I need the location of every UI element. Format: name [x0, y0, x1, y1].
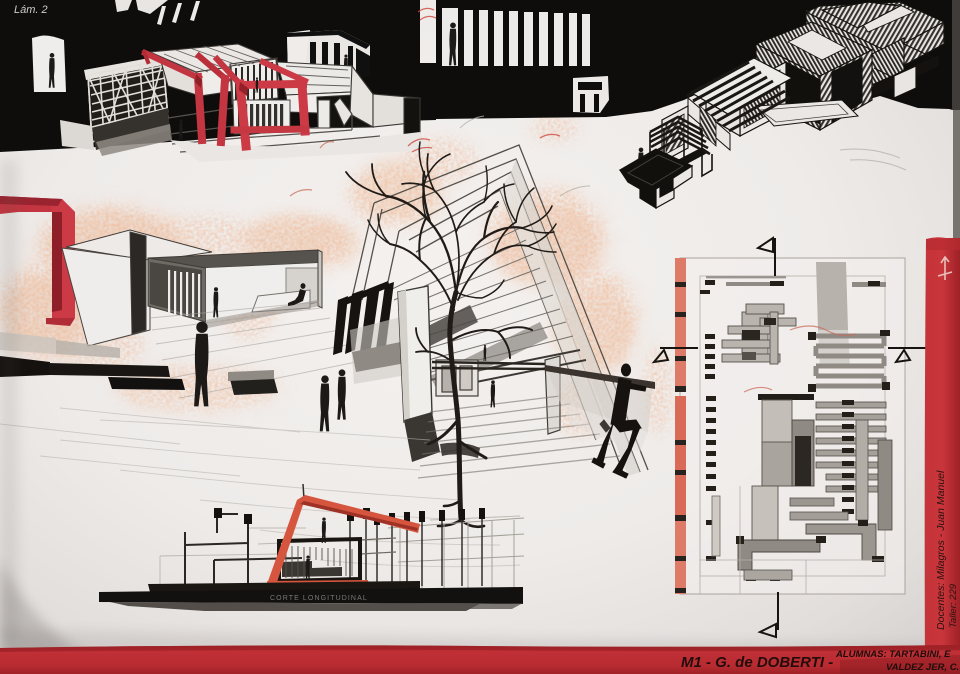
svg-text:CORTE LONGITUDINAL: CORTE LONGITUDINAL [270, 595, 368, 602]
svg-text:VALDEZ JER, C.: VALDEZ JER, C. [886, 662, 959, 673]
svg-text:M1 - G. de DOBERTI -: M1 - G. de DOBERTI - [681, 654, 833, 671]
svg-text:Docentes: Milagros - Juan Manu: Docentes: Milagros - Juan Manuel [935, 470, 947, 630]
svg-text:Lám. 2: Lám. 2 [14, 4, 48, 16]
svg-text:ALUMNAS: TARTABINI, E: ALUMNAS: TARTABINI, E [835, 649, 951, 660]
svg-text:Taller: 229: Taller: 229 [948, 583, 959, 628]
